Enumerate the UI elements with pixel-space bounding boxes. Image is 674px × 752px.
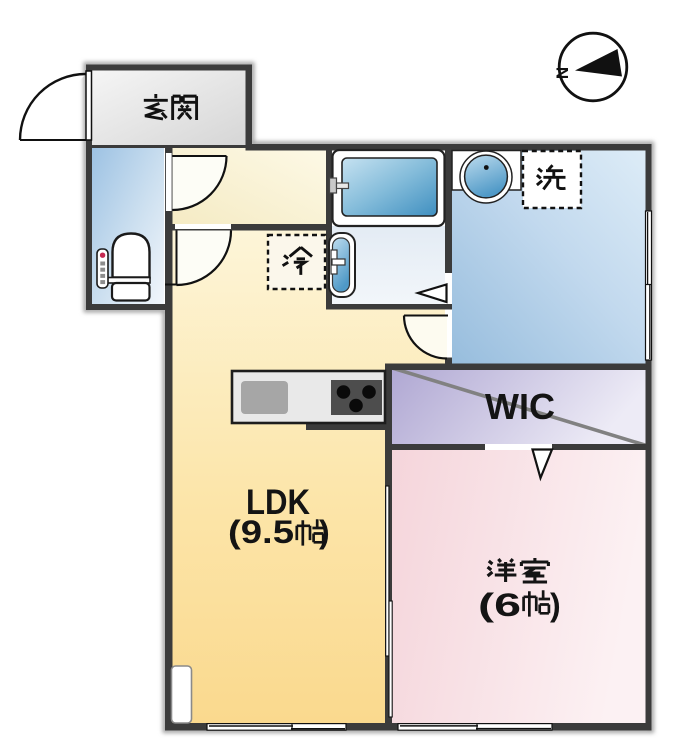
svg-text:(9.5: (9.5 [228, 514, 294, 550]
svg-text:(6: (6 [478, 587, 521, 623]
svg-text:N: N [553, 67, 572, 79]
svg-text:WIC: WIC [485, 386, 555, 427]
svg-text:): ) [319, 514, 330, 550]
svg-text:): ) [550, 587, 561, 623]
